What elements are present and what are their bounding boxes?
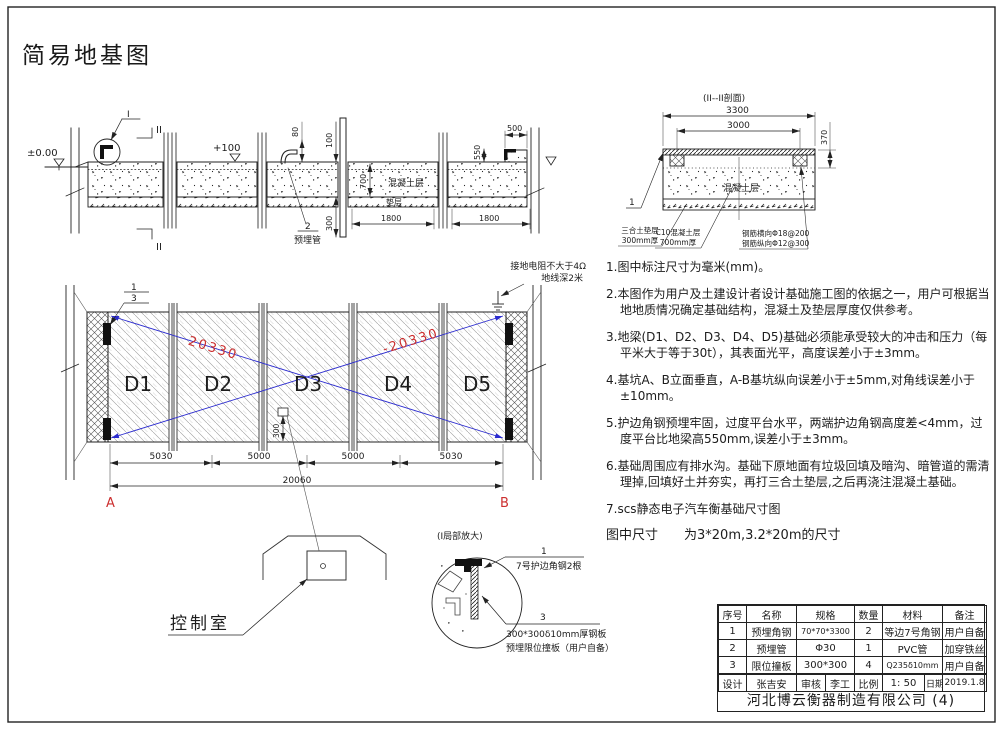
- concrete-slabs: [88, 149, 527, 207]
- cell: 预埋管: [747, 640, 797, 657]
- cell: 1: [855, 640, 883, 657]
- control-room: 控制室: [168, 536, 386, 635]
- dim-1800-left: 1800: [381, 214, 401, 223]
- company-name: 河北博云衡器制造有限公司 (4): [718, 692, 984, 711]
- control-room-label: 控制室: [170, 614, 230, 634]
- detail-speckle: [441, 565, 467, 632]
- concrete-layer-label: 混凝土层: [388, 177, 424, 189]
- note-4: 4.基坑A、B立面垂直，A-B基坑纵向误差小于±5mm,对角线误差小于±10mm…: [606, 372, 992, 404]
- cell: 预埋角钢: [747, 623, 797, 640]
- pipe-callout-label: 预埋管: [294, 234, 321, 246]
- dim-20060: 20060: [283, 476, 312, 486]
- dim-80: 80: [291, 127, 300, 137]
- col-header: 序号: [719, 606, 747, 623]
- block-d1: D1: [124, 372, 152, 396]
- signature-row: 设计 张吉安 审核 李工 比例 1: 50 日期 2019.1.8: [718, 674, 987, 692]
- date-value: 2019.1.8: [943, 675, 987, 692]
- block-d5: D5: [463, 372, 491, 396]
- col-header: 材料: [883, 606, 943, 623]
- grounding-note-2: 地线深2米: [541, 272, 583, 284]
- cushion-leader-line1: 三合土垫层: [621, 225, 659, 235]
- design-label: 设计: [719, 675, 747, 692]
- note-3: 3.地梁(D1、D2、D3、D4、D5)基础必须能承受较大的冲击和压力（每平米大…: [606, 329, 992, 361]
- cushion-layer-label: 垫层: [386, 197, 402, 207]
- block-d4: D4: [384, 372, 412, 396]
- detail-view: (I局部放大) 1 7号护边角钢2根 3 300*300δ10mm厚钢板 预埋限…: [432, 530, 614, 654]
- note-2: 2.本图作为用户及土建设计者设计基础施工图的依据之一，用户可根据当地地质情况确定…: [606, 286, 992, 318]
- c10-leader-line2: 700mm厚: [660, 238, 697, 247]
- dim-5030-left: 5030: [150, 452, 173, 462]
- grounding-symbol: [492, 291, 504, 310]
- level-plus100-label: +100: [213, 143, 240, 154]
- grounding-note-1: 接地电阻不大于4Ω: [510, 260, 586, 272]
- section-ii-title: (II--II剖面): [703, 92, 745, 104]
- plan-dims: 5030 5000 5000 5030 20060: [110, 444, 503, 491]
- dim-5030-right: 5030: [440, 452, 463, 462]
- cell: 3: [719, 657, 747, 674]
- dim-3000: 3000: [727, 121, 750, 131]
- table-row: 1 预埋角钢 70*70*3300 2 等边7号角钢 用户自备: [719, 623, 987, 640]
- designer-name: 张吉安: [747, 675, 797, 692]
- section-mark-top: II: [156, 125, 162, 136]
- table-row: 2 预埋管 Φ30 1 PVC管 加穿铁丝: [719, 640, 987, 657]
- section-ii-view: (II--II剖面) 混凝土层 3300 3000 370 1 三合土垫层: [618, 92, 836, 249]
- dim-370: 370: [820, 130, 829, 145]
- col-header: 数量: [855, 606, 883, 623]
- cell: 用户自备: [943, 623, 987, 640]
- cushion-leader-line2: 300mm厚: [622, 236, 659, 245]
- drawing-sheet: ±0.00: [0, 0, 1003, 730]
- cell: 等边7号角钢: [883, 623, 943, 640]
- detail-title: (I局部放大): [437, 530, 483, 542]
- detail-callout1-text: 7号护边角钢2根: [516, 560, 581, 572]
- cell: PVC管: [883, 640, 943, 657]
- plan-callout-1: 1: [131, 283, 137, 293]
- cell: 1: [719, 623, 747, 640]
- col-header: 规格: [797, 606, 855, 623]
- level-zero-label: ±0.00: [27, 148, 58, 159]
- notes-panel: 1.图中标注尺寸为毫米(mm)。 2.本图作为用户及土建设计者设计基础施工图的依…: [606, 259, 992, 555]
- block-d2: D2: [204, 372, 232, 396]
- detail-callout3-line1: 300*300δ10mm厚钢板: [506, 628, 606, 640]
- plan-view: 20330 -20330 D1 D2 D3 D4 D5 1 3 接地电阻不大于4…: [61, 260, 586, 563]
- dim-300: 300: [325, 216, 334, 231]
- dim-500: 500: [507, 124, 522, 133]
- pipe-callout-no: 2: [305, 222, 311, 232]
- page-title: 简易地基图: [22, 36, 152, 70]
- table-row: 3 限位撞板 300*300 4 Q235δ10mm 用户自备: [719, 657, 987, 674]
- table-header-row: 序号 名称 规格 数量 材料 备注: [719, 606, 987, 623]
- section-ii-concrete-label: 混凝土层: [723, 182, 759, 194]
- c10-leader-line1: C10混凝土层: [656, 227, 701, 237]
- checker-name: 李工: [826, 675, 855, 692]
- detail-zone-circle: [94, 139, 120, 165]
- cell: 2: [855, 623, 883, 640]
- scale-label: 比例: [855, 675, 883, 692]
- dim-5000-right: 5000: [342, 452, 365, 462]
- mark-a: A: [106, 496, 115, 511]
- col-header: 备注: [943, 606, 987, 623]
- top-section-view: ±0.00: [27, 110, 556, 253]
- cell: 限位撞板: [747, 657, 797, 674]
- block-d3: D3: [294, 372, 322, 396]
- cell: 2: [719, 640, 747, 657]
- section-ii-callout-no: 1: [629, 198, 635, 208]
- angle-steel-glyph: [100, 145, 113, 159]
- cell: 4: [855, 657, 883, 674]
- size-summary: 图中尺寸 为3*20m,3.2*20m的尺寸: [606, 528, 992, 544]
- dim-5000-left: 5000: [248, 452, 271, 462]
- note-6: 6.基础周围应有排水沟。基础下原地面有垃圾回填及暗沟、暗管道的需清理掉,回填好土…: [606, 458, 992, 490]
- col-header: 名称: [747, 606, 797, 623]
- pipe-elbow: [281, 150, 297, 163]
- detail-callout1-no: 1: [541, 547, 547, 557]
- scale-value: 1: 50: [883, 675, 925, 692]
- dim-700: 700: [359, 174, 368, 189]
- detail-callout-no: I: [127, 110, 130, 120]
- dim-550: 550: [473, 145, 482, 160]
- materials-table: 序号 名称 规格 数量 材料 备注 1 预埋角钢 70*70*3300 2 等边…: [718, 605, 987, 674]
- cell: 300*300: [797, 657, 855, 674]
- note-7: 7.scs静态电子汽车衡基础尺寸图: [606, 501, 992, 517]
- dim-100: 100: [325, 133, 334, 148]
- note-1: 1.图中标注尺寸为毫米(mm)。: [606, 259, 992, 275]
- dim-3300: 3300: [726, 106, 749, 116]
- section-mark-bottom: II: [156, 242, 162, 253]
- check-label: 审核: [797, 675, 826, 692]
- cell: Φ30: [797, 640, 855, 657]
- plan-dim-300: 300: [272, 423, 281, 438]
- cell: 加穿铁丝: [943, 640, 987, 657]
- rebar-leader-line1: 钢筋横向Φ18@200: [742, 228, 809, 238]
- rebar-leader-line2: 钢筋纵向Φ12@300: [742, 238, 809, 248]
- note-5: 5.护边角钢预埋牢固，过度平台水平，两端护边角钢高度差<4mm，过度平台比地梁高…: [606, 415, 992, 447]
- detail-callout3-no: 3: [540, 613, 546, 623]
- plan-callout-3: 3: [131, 294, 137, 304]
- dim-1800-right: 1800: [479, 214, 499, 223]
- cell: Q235δ10mm: [883, 657, 943, 674]
- detail-callout3-line2: 预埋限位撞板（用户自备）: [506, 642, 614, 654]
- title-block: 序号 名称 规格 数量 材料 备注 1 预埋角钢 70*70*3300 2 等边…: [717, 604, 985, 712]
- mark-b: B: [500, 496, 509, 511]
- cell: 用户自备: [943, 657, 987, 674]
- embedded-pipe: [340, 118, 346, 237]
- date-label: 日期: [925, 675, 943, 692]
- cell: 70*70*3300: [797, 623, 855, 640]
